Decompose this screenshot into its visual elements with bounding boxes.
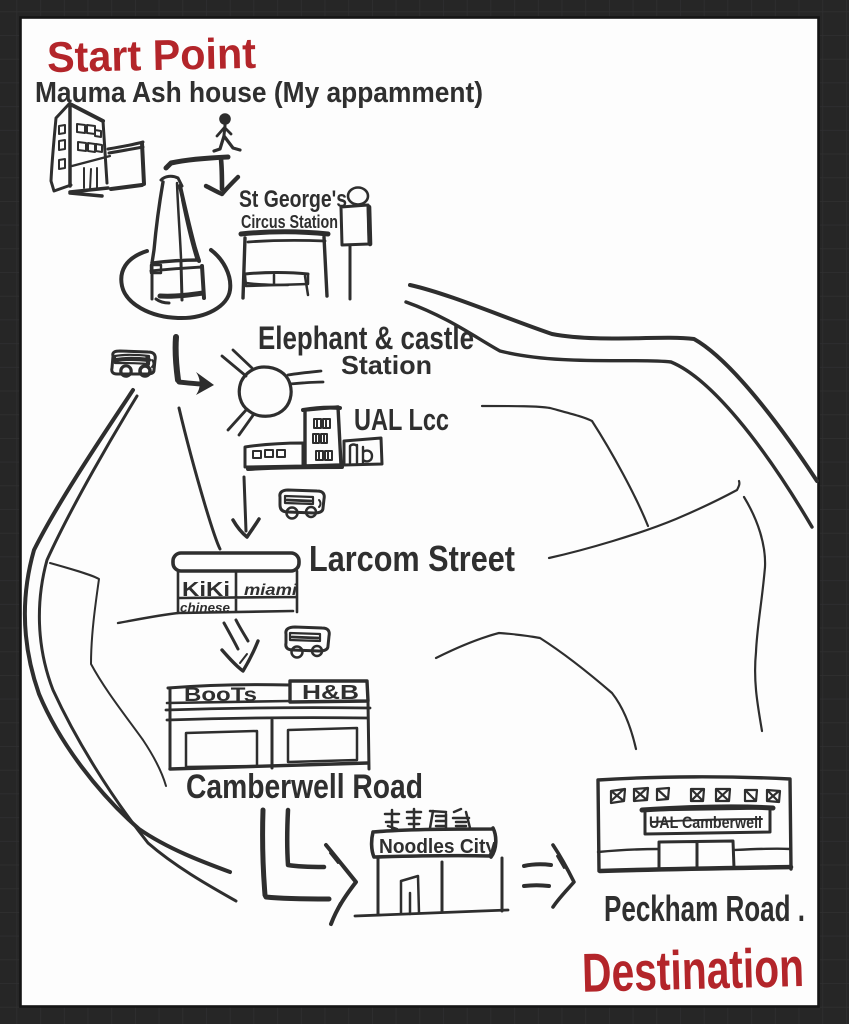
svg-text:KiKi: KiKi [182,579,230,601]
svg-text:UAL Camberwell: UAL Camberwell [649,814,762,832]
svg-text:Camberwell Road: Camberwell Road [186,768,423,806]
svg-text:H&B: H&B [302,682,359,704]
svg-text:chinese: chinese [180,601,230,615]
svg-text:Station: Station [341,350,432,380]
svg-text:BooTs: BooTs [184,685,257,706]
svg-text:Peckham Road .: Peckham Road . [604,888,805,929]
svg-text:Destination: Destination [581,936,805,1004]
svg-text:Larcom Street: Larcom Street [309,538,515,579]
svg-text:Start Point: Start Point [47,30,257,82]
svg-text:St George's: St George's [239,186,347,213]
svg-text:miami: miami [244,582,298,599]
svg-text:UAL Lcc: UAL Lcc [354,402,449,437]
svg-text:Noodles City: Noodles City [379,835,497,858]
svg-text:Circus Station: Circus Station [241,211,338,232]
svg-text:Mauma Ash house (My appamment): Mauma Ash house (My appamment) [35,77,483,109]
